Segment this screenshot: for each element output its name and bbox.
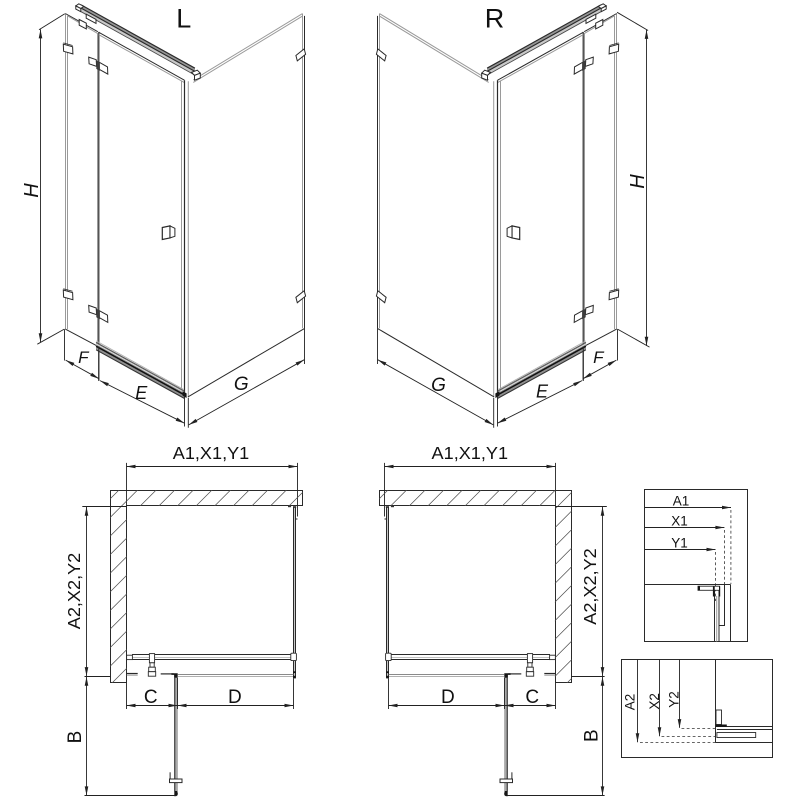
- svg-text:D: D: [441, 687, 455, 708]
- svg-text:B: B: [65, 731, 86, 744]
- svg-text:D: D: [228, 687, 242, 708]
- svg-text:A2,X2,Y2: A2,X2,Y2: [580, 548, 600, 625]
- svg-text:Y2: Y2: [667, 691, 682, 708]
- svg-text:X2: X2: [647, 693, 662, 710]
- svg-text:H: H: [21, 183, 43, 198]
- svg-text:H: H: [627, 174, 649, 189]
- svg-text:F: F: [593, 348, 605, 367]
- svg-text:A1: A1: [673, 493, 690, 508]
- svg-text:E: E: [536, 381, 549, 401]
- svg-text:F: F: [78, 348, 90, 367]
- svg-text:A1,X1,Y1: A1,X1,Y1: [173, 443, 250, 463]
- svg-text:A2,X2,Y2: A2,X2,Y2: [64, 553, 84, 630]
- svg-text:G: G: [431, 375, 446, 396]
- svg-text:L: L: [176, 3, 191, 33]
- svg-text:A2: A2: [623, 694, 638, 711]
- svg-text:R: R: [485, 4, 505, 34]
- svg-text:B: B: [581, 729, 602, 742]
- svg-text:A1,X1,Y1: A1,X1,Y1: [432, 443, 509, 463]
- svg-text:G: G: [234, 374, 249, 395]
- svg-text:C: C: [525, 687, 539, 708]
- svg-text:E: E: [135, 383, 148, 403]
- svg-text:X1: X1: [671, 514, 688, 529]
- svg-text:C: C: [144, 687, 158, 708]
- svg-text:Y1: Y1: [671, 536, 688, 551]
